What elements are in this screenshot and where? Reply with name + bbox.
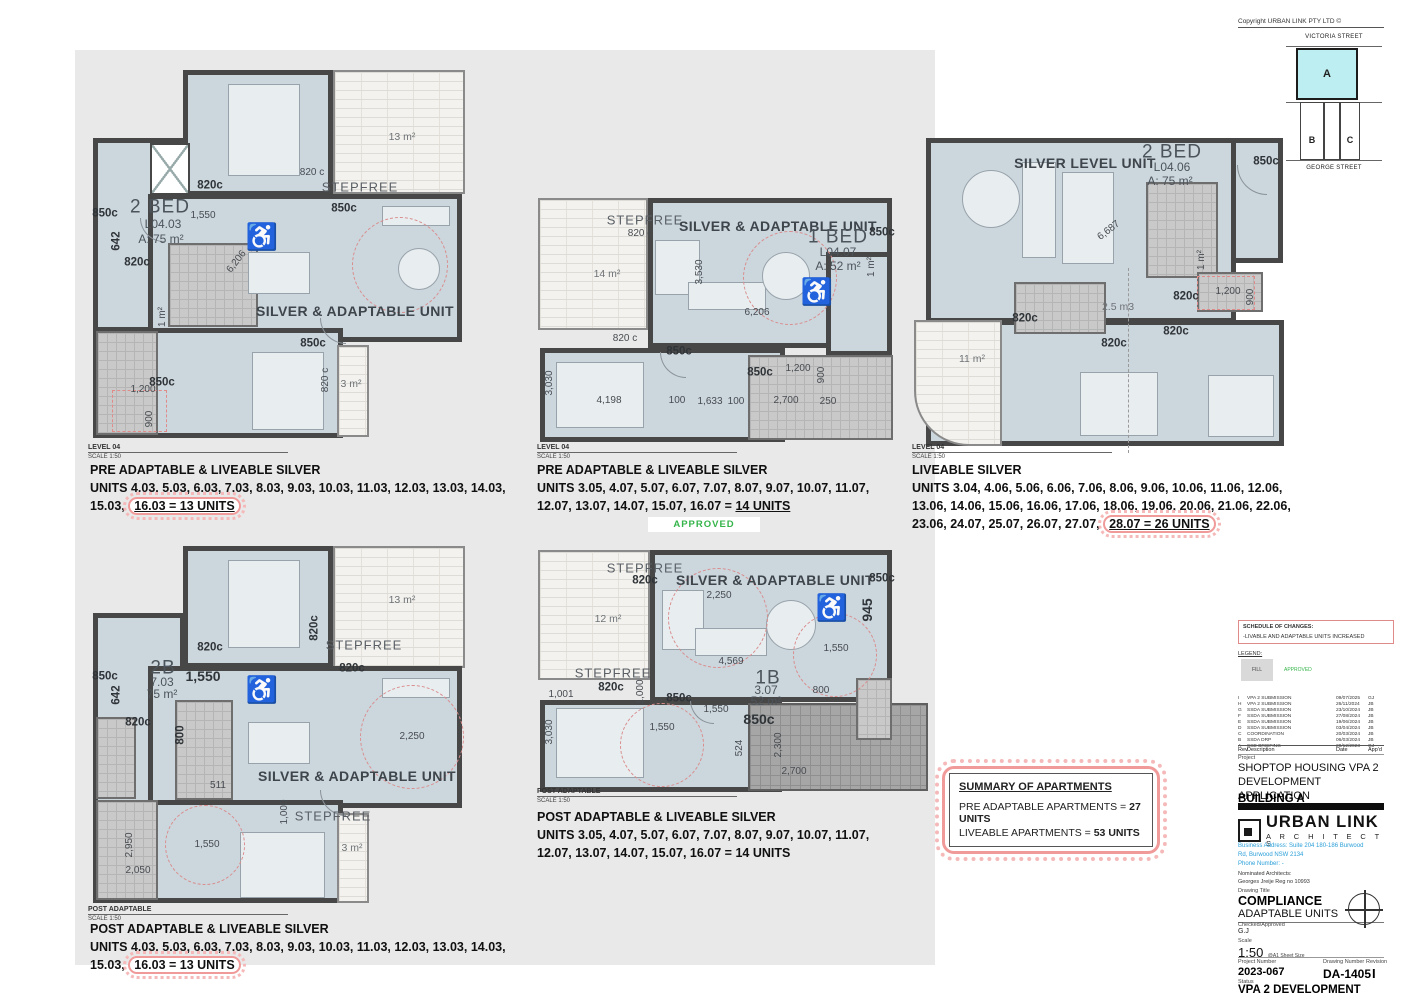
- plan-label: SILVER & ADAPTABLE UNIT: [676, 573, 874, 587]
- plan-label: STEPFREE: [322, 181, 399, 194]
- caption-heading: PRE ADAPTABLE & LIVEABLE SILVER: [90, 463, 510, 477]
- rule: [1238, 957, 1384, 958]
- legend-fill-swatch: FILL: [1241, 659, 1273, 681]
- view-scale: SCALE 1:50: [912, 454, 1172, 460]
- plan-label: 820c: [1012, 313, 1038, 325]
- plan-label: 820c: [598, 682, 624, 694]
- nominated-architects: Nominated Architects: Georges Jreije Reg…: [1238, 870, 1384, 887]
- view-scale: SCALE 1:50: [537, 798, 797, 804]
- plan-label: SILVER & ADAPTABLE UNIT: [256, 304, 454, 318]
- plan-label: 820c: [1101, 338, 1127, 350]
- plan-label: SILVER LEVEL UNIT: [1014, 156, 1156, 170]
- street-label-top: VICTORIA STREET: [1286, 34, 1382, 40]
- wheelchair-icon: ♿: [801, 277, 833, 308]
- legend-approved: APPROVED: [1284, 667, 1312, 673]
- view-name: POST ADAPTABLE: [537, 788, 737, 797]
- furniture: [240, 832, 325, 898]
- plan-label: 3,530: [695, 259, 705, 284]
- balcony-area: [914, 320, 1002, 446]
- plan-label: 14 m²: [594, 269, 621, 280]
- caption-highlight: 28.07 = 26 UNITS: [1103, 515, 1215, 533]
- plan-label: 2,700: [781, 767, 806, 777]
- caption-highlight: 16.03 = 13 UNITS: [128, 956, 240, 974]
- caption-block: POST ADAPTABLE & LIVEABLE SILVER UNITS 4…: [90, 922, 540, 974]
- address-line: Rd, Burwood NSW 2134: [1238, 851, 1384, 860]
- drawing-sheet: 13 m²820 cSTEPFREE820c850c2 BEDL04.03A: …: [0, 0, 1411, 996]
- plan-label: 4,198: [596, 396, 621, 406]
- plan-label: 1,000: [280, 799, 290, 824]
- view-name: LEVEL 04: [537, 444, 737, 453]
- caption-block: POST ADAPTABLE & LIVEABLE SILVER UNITS 3…: [537, 810, 902, 862]
- architect-name: Georges Jreije Reg no 10993: [1238, 878, 1384, 886]
- wheelchair-icon: ♿: [246, 222, 278, 253]
- plan-label: 12 m²: [595, 614, 622, 625]
- furniture: [1022, 162, 1056, 258]
- plan-label: 1,550: [649, 723, 674, 733]
- plan-label: 1,633: [697, 397, 722, 407]
- view-scale: SCALE 1:50: [537, 454, 797, 460]
- plan-label: 1 m²: [158, 307, 168, 327]
- plan-label: 1,550: [194, 840, 219, 850]
- street-line: [1286, 160, 1382, 161]
- plan-label: L04.06: [1154, 161, 1191, 173]
- plan-label: 511: [210, 781, 226, 791]
- view-label: POST ADAPTABLE SCALE 1:50: [537, 788, 797, 804]
- wheelchair-icon: ♿: [246, 675, 278, 706]
- caption-highlight: 14 UNITS: [735, 499, 790, 513]
- plan-label: 1,001: [548, 690, 573, 700]
- summary-line: LIVEABLE APARTMENTS = 53 UNITS: [959, 827, 1143, 839]
- plan-label: STEPFREE: [607, 214, 684, 227]
- plan-label: 820c: [309, 615, 321, 641]
- view-name: LEVEL 04: [912, 444, 1112, 453]
- plan-label: 820c: [197, 180, 223, 192]
- furniture: [1062, 172, 1114, 264]
- address-line: Phone Number: -: [1238, 860, 1384, 869]
- revision-table-header: Rev Description Date App'd: [1238, 745, 1384, 755]
- plan-label: 1,550: [190, 211, 215, 221]
- plan-label: 820c: [632, 575, 658, 587]
- furniture: [1208, 375, 1274, 437]
- project-line: SHOPTOP HOUSING VPA 2: [1238, 762, 1384, 776]
- plan-label: 2,700: [773, 396, 798, 406]
- plan-label: 800: [813, 686, 830, 696]
- plan-label: 800: [175, 725, 187, 744]
- plan-label: 1 m²: [1197, 250, 1207, 270]
- legend: LEGEND: FILL APPROVED: [1238, 651, 1384, 687]
- plan-label: 3 m²: [341, 379, 362, 390]
- plan-label: 820 c: [628, 229, 652, 239]
- plan-label: 4,569: [718, 657, 743, 667]
- plan-label: 1,550: [185, 669, 220, 683]
- turning-circle: [793, 613, 877, 697]
- plan-label: STEPFREE: [326, 639, 403, 652]
- wheelchair-icon: ♿: [816, 593, 848, 624]
- plan-label: 1 BED: [808, 228, 868, 247]
- middle-lot: [1324, 102, 1340, 160]
- plan-label: 945: [860, 598, 874, 621]
- plan-label: 2 BED: [130, 198, 190, 217]
- caption-block: PRE ADAPTABLE & LIVEABLE SILVER UNITS 3.…: [537, 463, 907, 515]
- plan-label: 250: [820, 397, 837, 407]
- caption-heading: POST ADAPTABLE & LIVEABLE SILVER: [537, 810, 902, 824]
- caption-units: UNITS 4.03, 5.03, 6.03, 7.03, 8.03, 9.03…: [90, 479, 510, 515]
- plan-label: 820c: [124, 257, 150, 269]
- summary-inner-box: SUMMARY OF APARTMENTS PRE ADAPTABLE APAR…: [949, 773, 1153, 847]
- view-name: POST ADAPTABLE: [88, 906, 288, 915]
- plan-label: 52 m²: [751, 695, 782, 707]
- schedule-of-changes: SCHEDULE OF CHANGES: -LIVABLE AND ADAPTA…: [1238, 620, 1394, 644]
- plan-label: 850c: [1253, 156, 1279, 168]
- tiled-area: [1014, 282, 1106, 334]
- red-dashed-zone: [112, 390, 167, 432]
- plan-label: A: 75 m²: [138, 233, 183, 245]
- plan-label: 642: [111, 231, 123, 250]
- turning-circle: [352, 217, 448, 313]
- caption-block: PRE ADAPTABLE & LIVEABLE SILVER UNITS 4.…: [90, 463, 510, 515]
- plan-label: SILVER & ADAPTABLE UNIT: [258, 769, 456, 783]
- plan-label: 820 c: [321, 368, 331, 392]
- plan-label: 3 m²: [342, 843, 363, 854]
- project-label: Project: [1238, 755, 1384, 761]
- plan-label: 850c: [666, 693, 692, 705]
- view-label: POST ADAPTABLE SCALE 1:50: [88, 906, 348, 922]
- appd-col: App'd: [1368, 747, 1384, 753]
- furniture: [228, 84, 300, 176]
- north-symbol: [1348, 893, 1380, 925]
- view-scale: SCALE 1:50: [88, 454, 348, 460]
- summary-title: SUMMARY OF APARTMENTS: [959, 781, 1143, 793]
- plan-label: 1,200: [1215, 287, 1240, 297]
- summary-of-apartments: SUMMARY OF APARTMENTS PRE ADAPTABLE APAR…: [942, 766, 1160, 854]
- divider-bar: [1238, 803, 1384, 810]
- plan-label: A: 75 m²: [1147, 175, 1192, 187]
- plan-label: 11 m²: [959, 354, 985, 365]
- plan-label: 75 m²: [147, 688, 178, 700]
- plan-label: 820c: [125, 717, 151, 729]
- caption-units: UNITS 3.05, 4.07, 5.07, 6.07, 7.07, 8.07…: [537, 826, 902, 862]
- rev-col: Rev: [1238, 747, 1247, 753]
- plan-label: 850c: [331, 203, 357, 215]
- plan-label: A: 52 m²: [815, 260, 860, 272]
- plan-label: 850c: [869, 573, 895, 585]
- desc-col: Description: [1247, 747, 1336, 753]
- nominated-label: Nominated Architects:: [1238, 870, 1384, 878]
- status-value: VPA 2 DEVELOPMENT APPLICATION: [1238, 984, 1398, 996]
- plan-label: STEPFREE: [295, 810, 372, 823]
- address-line: Business Address: Suite 204 180-186 Burw…: [1238, 842, 1384, 851]
- caption-units: UNITS 4.03, 5.03, 6.03, 7.03, 8.03, 9.03…: [90, 938, 540, 974]
- building-a-lot: A: [1296, 48, 1358, 100]
- caption-units: UNITS 3.05, 4.07, 5.07, 6.07, 7.07, 8.07…: [537, 479, 907, 515]
- caption-heading: PRE ADAPTABLE & LIVEABLE SILVER: [537, 463, 907, 477]
- plan-label: 2 BED: [1142, 143, 1202, 162]
- building-c-lot: C: [1340, 102, 1360, 160]
- schedule-item: -LIVABLE AND ADAPTABLE UNITS INCREASED: [1243, 634, 1389, 640]
- plan-label: 524: [735, 740, 745, 757]
- plan-label: 1,200: [130, 385, 155, 395]
- plan-label: 850c: [92, 208, 118, 220]
- caption-highlight: 14 UNITS: [735, 846, 790, 860]
- date-col: Date: [1336, 747, 1368, 753]
- view-label: LEVEL 04 SCALE 1:50: [537, 444, 797, 460]
- plan-label: L04.03: [145, 218, 182, 230]
- furniture: [228, 560, 300, 648]
- tiled-area: [96, 717, 136, 799]
- plan-label: 850c: [869, 227, 895, 239]
- plan-label: 2.5 m3: [1102, 302, 1134, 313]
- plan-label: 820 c: [300, 168, 324, 178]
- street-line: [1286, 46, 1382, 47]
- plan-label: 2,300: [774, 732, 784, 757]
- revision-table: IVPA 2 SUBMISSION09/07/2025GJHVPA 2 SUBM…: [1238, 696, 1384, 750]
- plan-label: 2,250: [706, 591, 731, 601]
- plan-label: 1,200: [785, 364, 810, 374]
- plan-label: 2,250: [399, 732, 424, 742]
- summary-line: PRE ADAPTABLE APARTMENTS = 27 UNITS: [959, 801, 1143, 825]
- legend-label: LEGEND:: [1238, 651, 1384, 657]
- plan-label: 1,550: [703, 705, 728, 715]
- plan-label: 850c: [92, 671, 118, 683]
- caption-heading: POST ADAPTABLE & LIVEABLE SILVER: [90, 922, 540, 936]
- plan-label: 100: [728, 397, 745, 407]
- building-b-lot: B: [1300, 102, 1324, 160]
- caption-units: UNITS 3.04, 4.06, 5.06, 6.06, 7.06, 8.06…: [912, 479, 1302, 533]
- plan-label: 642: [111, 685, 123, 704]
- plan-label: 100: [669, 396, 686, 406]
- caption-heading: LIVEABLE SILVER: [912, 463, 1302, 477]
- furniture: [962, 170, 1020, 228]
- furniture: [1080, 372, 1158, 436]
- caption-highlight: 16.03 = 13 UNITS: [128, 497, 240, 515]
- plan-label: 900: [145, 411, 155, 428]
- plan-label: 13 m²: [389, 132, 416, 143]
- plan-label: 2,050: [125, 866, 150, 876]
- checked-value: G.J: [1238, 928, 1384, 935]
- plan-label: 850c: [747, 367, 773, 379]
- plan-label: 820c: [1173, 291, 1199, 303]
- caption-block: LIVEABLE SILVER UNITS 3.04, 4.06, 5.06, …: [912, 463, 1302, 533]
- urban-link-logo-icon: [1238, 819, 1261, 842]
- copyright-line: Copyright URBAN LINK PTY LTD ©: [1238, 18, 1384, 28]
- plan-label: 2,950: [125, 832, 135, 857]
- plan-label: STEPFREE: [575, 667, 652, 680]
- view-label: LEVEL 04 SCALE 1:50: [88, 444, 348, 460]
- plan-label: 6,206: [744, 308, 769, 318]
- revision-label: Revision: [1366, 959, 1387, 965]
- firm-address: Business Address: Suite 204 180-186 Burw…: [1238, 842, 1384, 869]
- tiled-area: [1146, 182, 1218, 278]
- turning-circle: [620, 703, 704, 787]
- dashed-line: [1128, 268, 1129, 453]
- plan-label: 820c: [339, 663, 365, 675]
- plan-label: 820c: [1163, 326, 1189, 338]
- plan-label: 820c: [197, 642, 223, 654]
- lift-shaft: [150, 143, 190, 195]
- plan-label: 3,030: [545, 370, 555, 395]
- plan-label: 1,000: [636, 679, 646, 704]
- plan-label: 850c: [300, 338, 326, 350]
- firm-name: URBAN LINK: [1266, 814, 1384, 831]
- plan-label: 850c: [743, 712, 774, 726]
- plan-label: 900: [1246, 289, 1256, 306]
- balcony-area: [337, 813, 369, 903]
- plan-label: 900: [817, 367, 827, 384]
- plan-label: 850c: [666, 346, 692, 358]
- plan-label: 1,550: [823, 644, 848, 654]
- plan-label: L04.07: [820, 246, 857, 258]
- street-label-bottom: GEORGE STREET: [1286, 165, 1382, 171]
- drawing-number-label: Drawing Number: [1323, 959, 1364, 965]
- plan-label: 1 m²: [867, 257, 877, 277]
- plan-label: STEPFREE: [607, 562, 684, 575]
- view-name: LEVEL 04: [88, 444, 288, 453]
- approved-stamp: APPROVED: [648, 517, 760, 532]
- furniture: [248, 252, 310, 294]
- location-key-map: VICTORIA STREET A B C GEORGE STREET: [1286, 30, 1382, 175]
- plan-label: 13 m²: [389, 595, 416, 606]
- plan-label: 820 c: [613, 334, 637, 344]
- schedule-title: SCHEDULE OF CHANGES:: [1243, 624, 1389, 630]
- plan-label: 3,030: [545, 719, 555, 744]
- furniture: [252, 352, 324, 430]
- view-label: LEVEL 04 SCALE 1:50: [912, 444, 1172, 460]
- balcony-area: [337, 345, 369, 437]
- furniture: [248, 722, 310, 764]
